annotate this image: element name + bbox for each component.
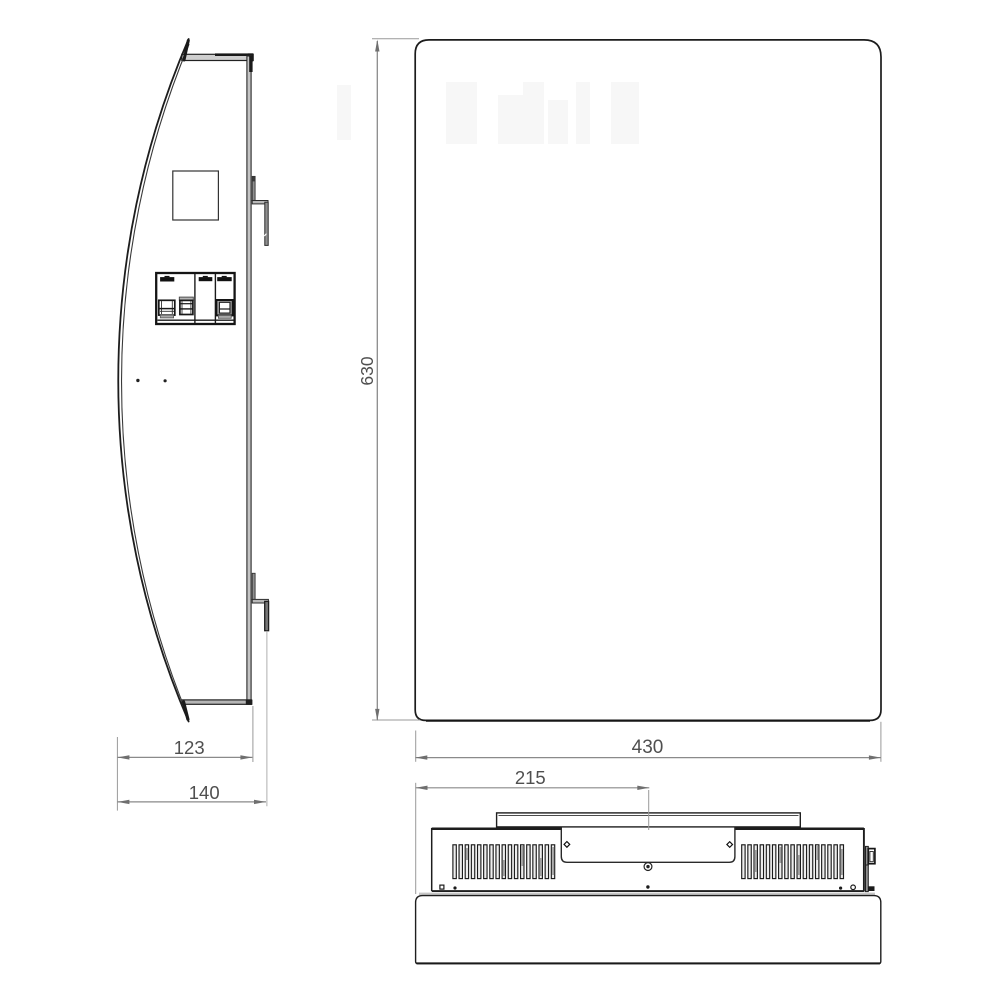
svg-text:123: 123: [174, 737, 205, 758]
svg-text:630: 630: [357, 356, 377, 385]
svg-text:140: 140: [189, 782, 220, 803]
svg-text:430: 430: [632, 737, 664, 758]
svg-text:215: 215: [515, 767, 546, 788]
